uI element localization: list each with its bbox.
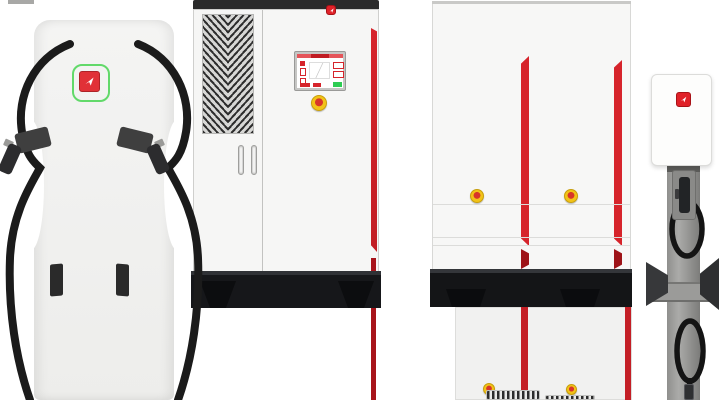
product-showcase — [0, 0, 719, 400]
rack-panel-line — [433, 245, 630, 246]
houjing-logo-icon — [326, 5, 336, 15]
screen-panel — [297, 54, 343, 88]
arrow-glyph — [83, 75, 96, 88]
rack-panel-line — [433, 237, 630, 238]
wallbox-unit — [651, 74, 712, 166]
screen-chart — [309, 62, 330, 79]
emergency-stop-button — [311, 95, 327, 111]
wall-charger-gun — [672, 170, 696, 220]
cabinet-accent-stripe — [371, 28, 377, 252]
crossbar-block-right — [700, 258, 719, 310]
rack-frame — [432, 2, 631, 270]
screen-box1 — [300, 68, 306, 76]
hmi-screen — [294, 51, 346, 91]
rack-lower-grille-2 — [545, 395, 595, 400]
top-edge-fragment — [8, 0, 34, 4]
rack-stripe-right — [614, 60, 622, 246]
screen-btn-red2 — [313, 83, 321, 87]
cabinet-door-seam — [262, 10, 263, 271]
rack-foot-right — [560, 289, 600, 307]
cable-connector-tip — [684, 384, 694, 400]
gun-body — [679, 177, 690, 213]
screen-titlebar — [297, 54, 343, 58]
screen-btn-green — [333, 82, 342, 87]
rack-lower-stripe-left — [521, 307, 528, 400]
dc-fast-charger — [34, 20, 174, 400]
gun-trigger — [675, 189, 679, 199]
houjing-logo-icon — [79, 71, 100, 92]
charger-vent-slot-right — [116, 263, 129, 296]
cabinet-brand — [326, 5, 339, 15]
screen-box4 — [333, 71, 344, 78]
rack-estop-left — [470, 189, 484, 203]
gun-handle — [0, 142, 22, 175]
rack-lower-estop-right — [566, 384, 577, 395]
rack-top-line — [432, 1, 631, 4]
charging-gun-left — [2, 126, 54, 176]
rack-stripe-left — [521, 56, 529, 246]
rack-lower-section — [455, 307, 632, 400]
screen-logo — [300, 61, 305, 66]
charging-gun-right — [114, 126, 166, 176]
vent-chevron-right — [228, 15, 253, 133]
door-handle-left — [238, 145, 244, 175]
rack-lower-stripe-right — [625, 307, 631, 400]
vent-chevron-left — [203, 15, 228, 133]
screen-btn-red1 — [300, 83, 310, 87]
charger-vent-slot-left — [50, 263, 63, 296]
rack-panel-line — [433, 204, 630, 205]
cabinet-vent-grille — [202, 14, 254, 134]
houjing-logo — [72, 64, 110, 102]
rack-foot-left — [446, 289, 486, 307]
houjing-logo-icon — [676, 92, 691, 107]
rack-estop-right — [564, 189, 578, 203]
rack-lower-grille — [486, 390, 540, 400]
screen-box3 — [333, 62, 344, 69]
door-handle-right — [251, 145, 257, 175]
